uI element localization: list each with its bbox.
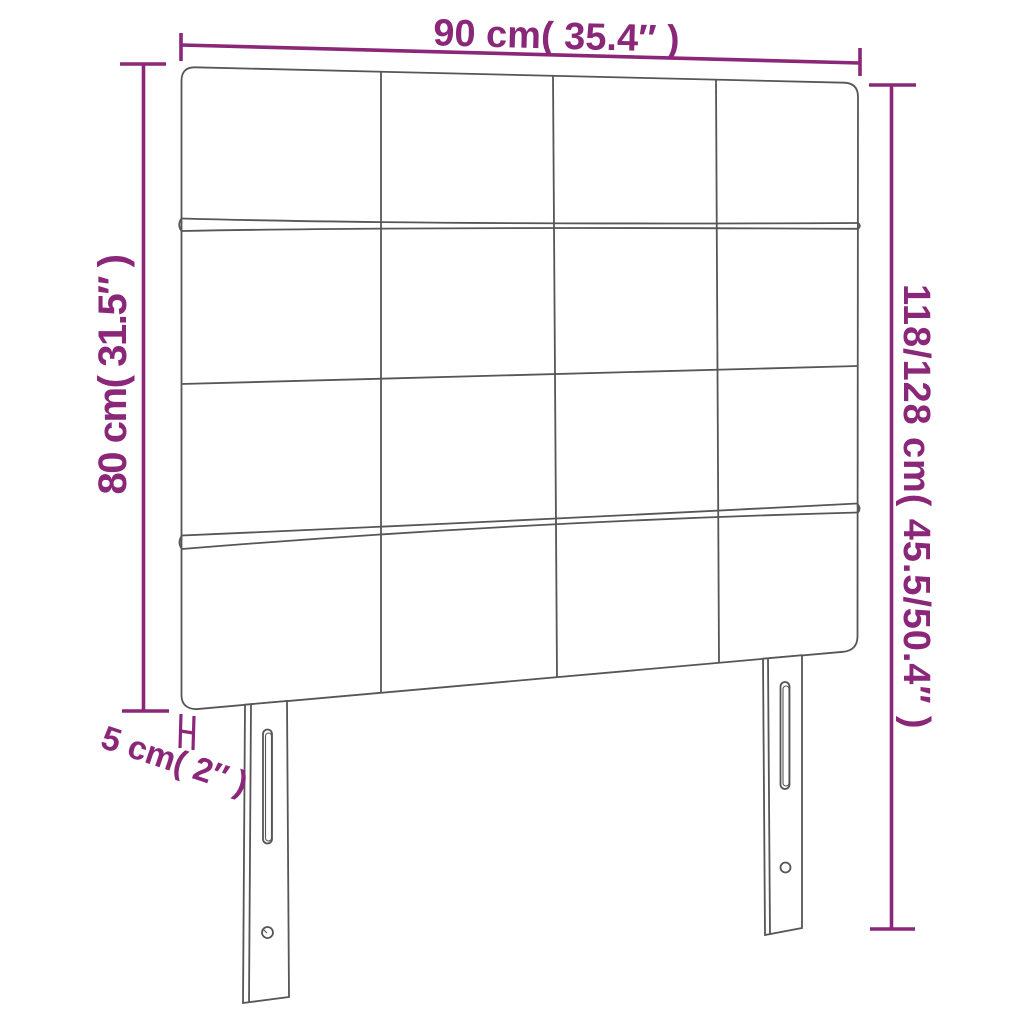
svg-text:90 cm( 35.4″ ): 90 cm( 35.4″ ): [433, 12, 680, 61]
svg-text:80 cm( 31.5″ ): 80 cm( 31.5″ ): [91, 255, 135, 494]
svg-text:118/128 cm( 45.5/50.4″ ): 118/128 cm( 45.5/50.4″ ): [895, 284, 937, 729]
